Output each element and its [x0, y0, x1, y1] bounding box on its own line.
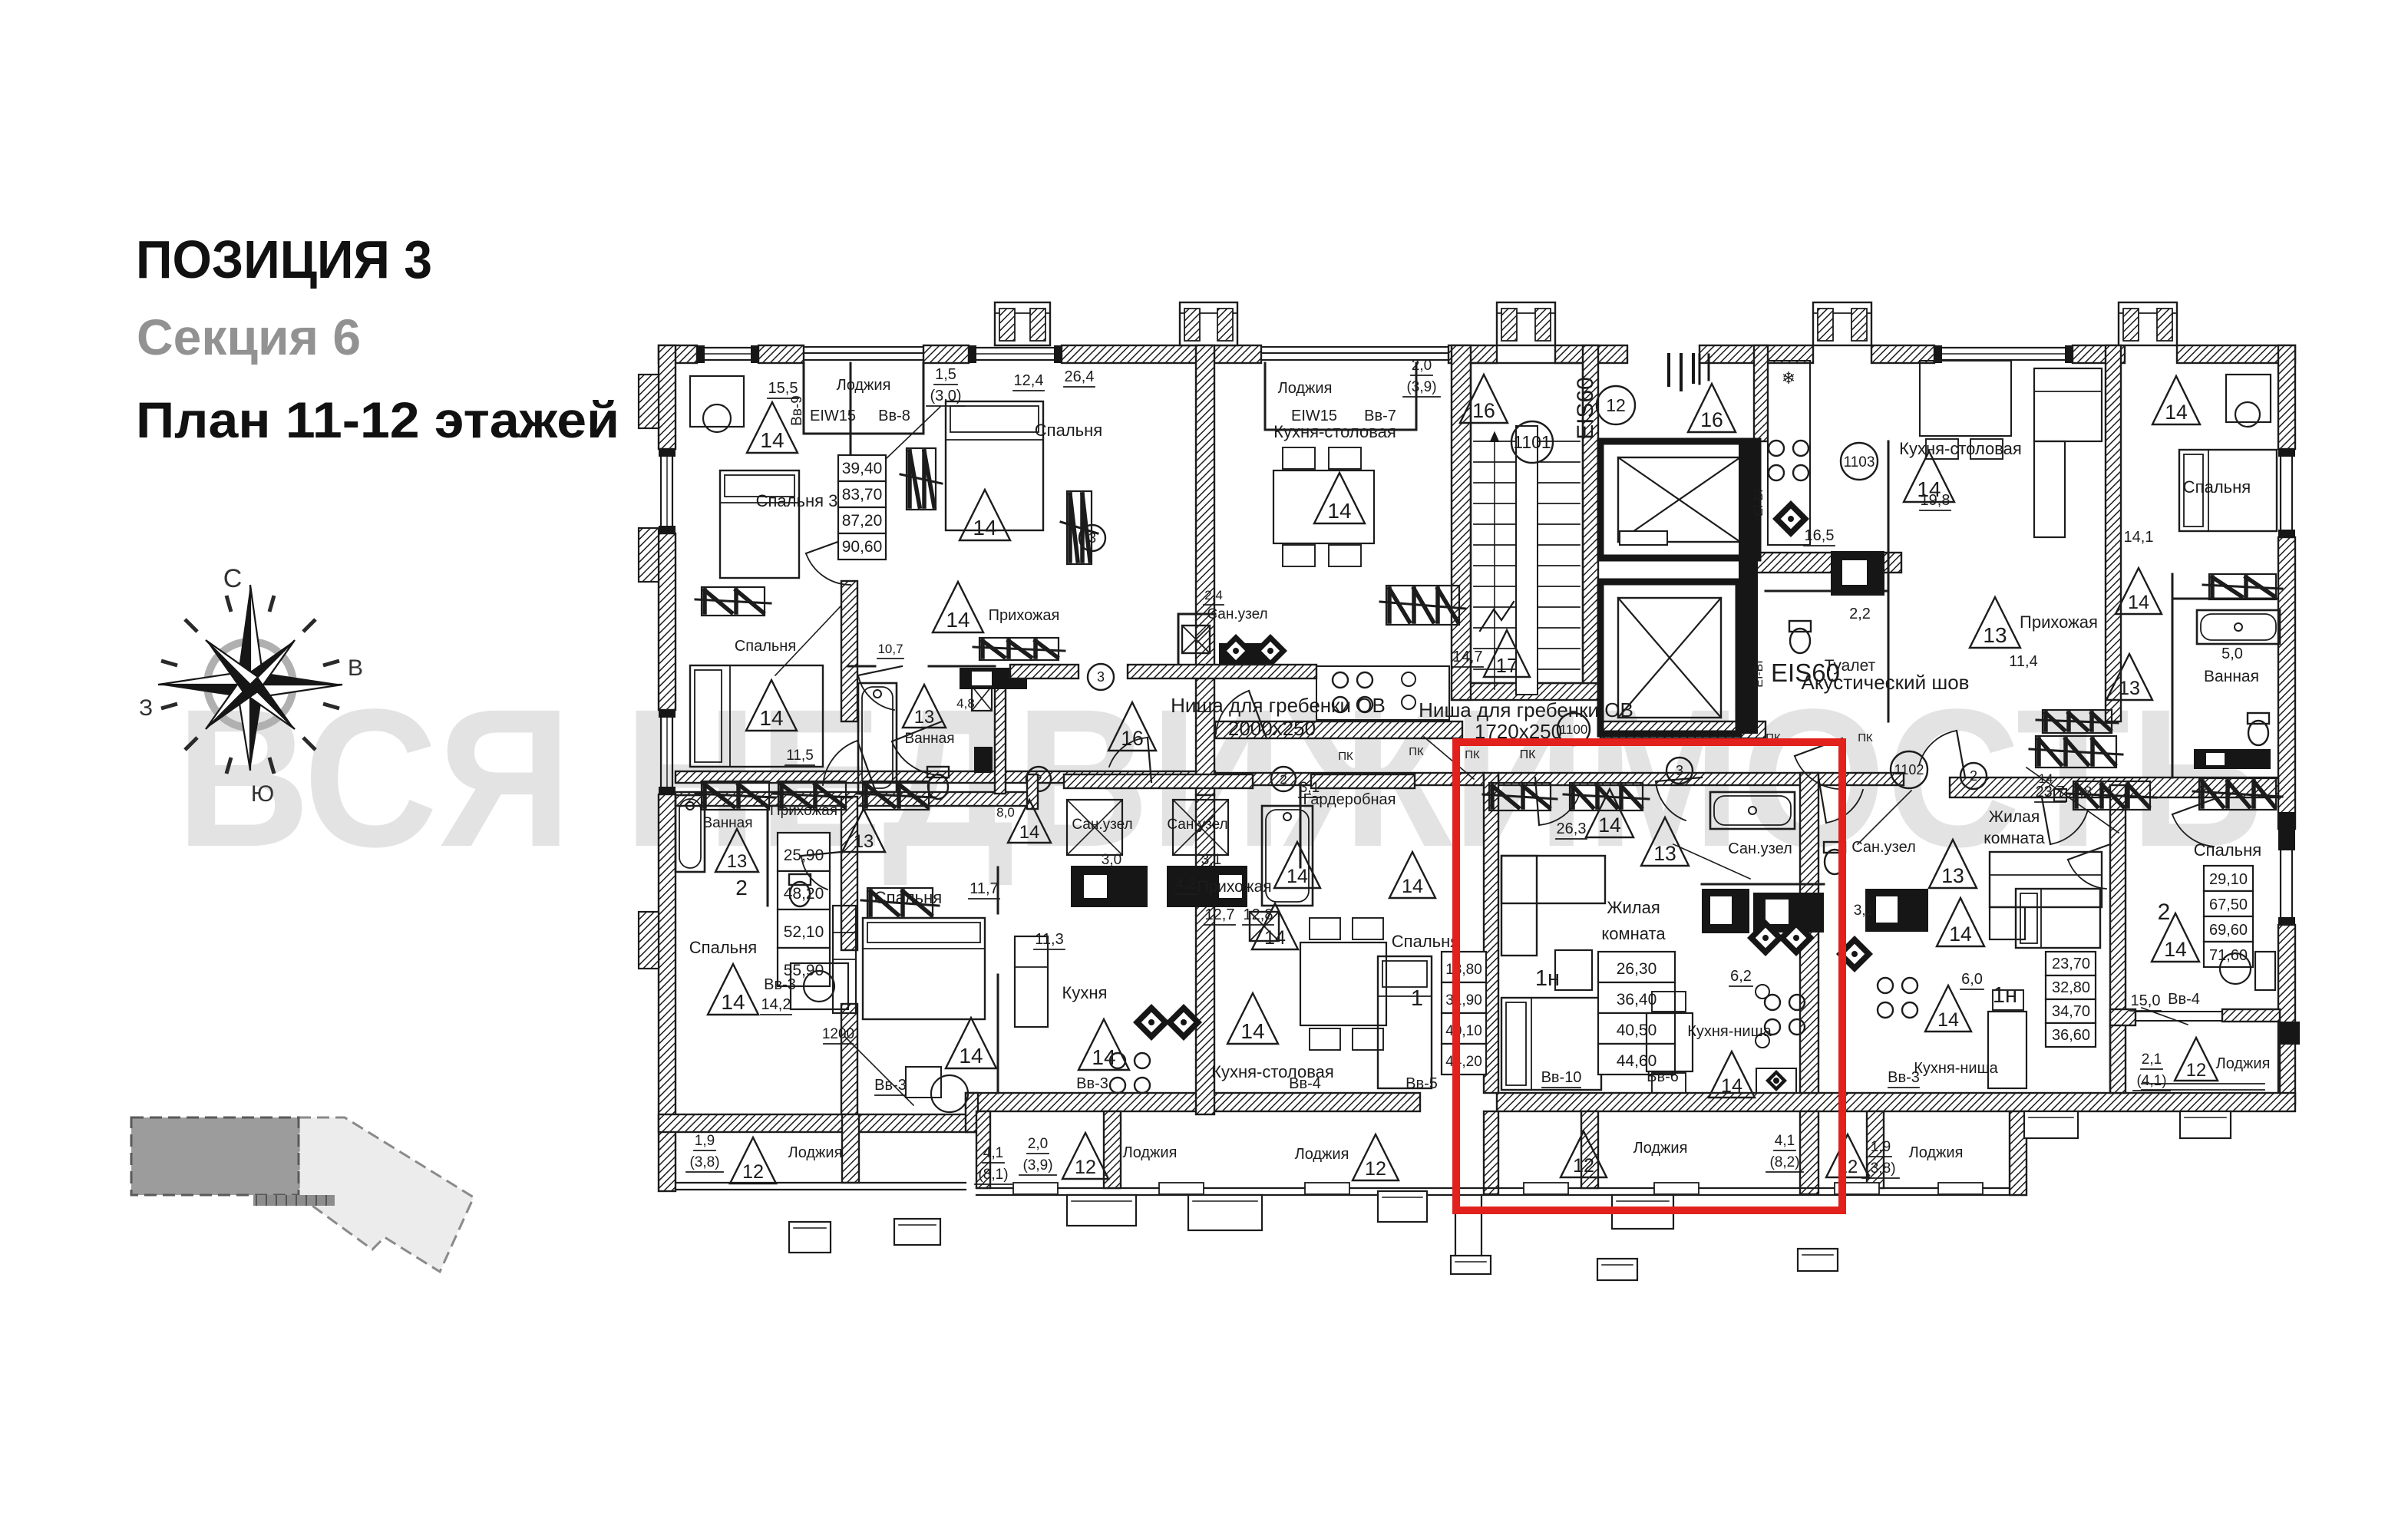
svg-text:40,10: 40,10	[1445, 1023, 1482, 1039]
svg-text:(3,8): (3,8)	[1865, 1160, 1895, 1177]
svg-text:3,1: 3,1	[1854, 903, 1874, 919]
svg-text:36,40: 36,40	[1617, 991, 1657, 1008]
svg-text:Прихожая: Прихожая	[989, 607, 1060, 624]
svg-text:2,2: 2,2	[1849, 606, 1871, 622]
svg-text:Вв-10: Вв-10	[1541, 1069, 1582, 1086]
svg-text:14: 14	[2128, 592, 2149, 613]
svg-text:Кухня: Кухня	[1062, 983, 1108, 1002]
svg-text:3,1: 3,1	[1300, 780, 1320, 796]
svg-text:26,4: 26,4	[1065, 368, 1095, 385]
svg-text:Вв-8: Вв-8	[878, 408, 910, 424]
svg-text:14: 14	[1937, 1009, 1959, 1031]
svg-text:39,40: 39,40	[842, 460, 883, 477]
svg-text:Ниша для гребенки ОВ: Ниша для гребенки ОВ	[1419, 698, 1633, 721]
svg-text:Ванная: Ванная	[2204, 668, 2259, 685]
svg-text:(8,1): (8,1)	[978, 1167, 1008, 1183]
svg-text:Спальня 3: Спальня 3	[756, 491, 838, 510]
svg-text:14,2: 14,2	[761, 996, 791, 1013]
svg-text:32,80: 32,80	[2052, 979, 2090, 996]
svg-text:(4,1): (4,1)	[2136, 1073, 2166, 1089]
svg-text:Лоджия: Лоджия	[1909, 1144, 1964, 1161]
svg-text:(8,2): (8,2)	[1769, 1154, 1799, 1170]
svg-text:Туалет: Туалет	[1825, 657, 1876, 675]
svg-text:14: 14	[973, 516, 996, 540]
svg-text:Прихожая: Прихожая	[770, 803, 837, 819]
svg-text:14: 14	[2039, 771, 2053, 786]
svg-text:1: 1	[1411, 986, 1423, 1011]
svg-text:2,0: 2,0	[1028, 1136, 1048, 1152]
svg-text:2: 2	[1970, 768, 1977, 784]
svg-text:ПК: ПК	[1520, 748, 1537, 761]
svg-text:14: 14	[1402, 876, 1423, 897]
svg-text:ПК: ПК	[1858, 731, 1873, 744]
svg-text:ПК: ПК	[1338, 750, 1353, 763]
svg-text:4,1: 4,1	[983, 1145, 1003, 1161]
svg-text:Спальня: Спальня	[2183, 477, 2251, 497]
svg-text:40,50: 40,50	[1617, 1022, 1657, 1039]
svg-text:3,0: 3,0	[1102, 852, 1121, 868]
svg-text:52,10: 52,10	[784, 923, 824, 941]
svg-text:ПК: ПК	[1465, 748, 1480, 761]
svg-text:69,60: 69,60	[2209, 922, 2248, 939]
svg-text:Ниша для гребенки ОВ: Ниша для гребенки ОВ	[1171, 694, 1386, 717]
svg-text:EIS60: EIS60	[1573, 377, 1598, 440]
svg-text:19,8: 19,8	[1921, 492, 1951, 509]
svg-text:11,3: 11,3	[1035, 931, 1063, 948]
svg-text:Кухня-ниша: Кухня-ниша	[1687, 1023, 1772, 1040]
svg-text:Кухня-ниша: Кухня-ниша	[1914, 1060, 1998, 1077]
svg-text:3: 3	[1097, 669, 1105, 685]
svg-text:14: 14	[721, 990, 745, 1014]
svg-text:В: В	[348, 655, 363, 681]
svg-text:2000х250: 2000х250	[1228, 717, 1316, 740]
svg-text:Спальня: Спальня	[689, 938, 757, 957]
svg-text:14: 14	[760, 428, 784, 452]
svg-text:Сан.узел: Сан.узел	[1167, 817, 1227, 833]
svg-text:комната: комната	[1984, 830, 2045, 847]
svg-text:13: 13	[854, 831, 874, 852]
svg-text:❄: ❄	[1782, 368, 1795, 388]
svg-text:Кухня-столовая: Кухня-столовая	[1273, 422, 1396, 441]
svg-text:83,70: 83,70	[842, 486, 883, 503]
svg-text:2: 2	[735, 876, 748, 900]
svg-text:1101: 1101	[1513, 432, 1551, 452]
svg-text:Вв-3: Вв-3	[874, 1077, 907, 1094]
svg-text:12: 12	[742, 1161, 764, 1183]
svg-text:13: 13	[914, 707, 934, 728]
svg-text:2,1: 2,1	[2142, 1051, 2162, 1068]
svg-text:36,60: 36,60	[2052, 1027, 2090, 1044]
svg-text:Сан.узел: Сан.узел	[1728, 840, 1792, 857]
svg-text:EIW15: EIW15	[810, 408, 856, 424]
svg-text:EIW15: EIW15	[1291, 408, 1337, 424]
svg-text:17: 17	[1496, 655, 1518, 677]
svg-text:15,0: 15,0	[2131, 992, 2161, 1009]
svg-text:1н: 1н	[1993, 983, 2017, 1008]
svg-text:3: 3	[1676, 763, 1683, 778]
svg-text:Прихожая: Прихожая	[1197, 878, 1271, 896]
svg-text:31,90: 31,90	[1445, 992, 1482, 1008]
svg-text:ЕІ-БІ: ЕІ-БІ	[1752, 489, 1766, 516]
svg-text:Сан.узел: Сан.узел	[1072, 817, 1132, 833]
svg-text:4,2: 4,2	[1176, 876, 1196, 893]
svg-text:23,70: 23,70	[2052, 956, 2090, 972]
svg-text:14: 14	[946, 608, 969, 632]
svg-text:14,1: 14,1	[2124, 529, 2154, 546]
svg-text:11,5: 11,5	[786, 748, 814, 764]
svg-text:16: 16	[1472, 399, 1495, 422]
svg-text:Лоджия: Лоджия	[1295, 1146, 1349, 1163]
svg-text:Спальня: Спальня	[1035, 421, 1102, 440]
svg-text:2,4: 2,4	[1204, 588, 1223, 602]
svg-text:6,0: 6,0	[1961, 971, 1983, 988]
svg-text:Спальня: Спальня	[2194, 840, 2261, 860]
svg-text:14,7: 14,7	[1453, 649, 1483, 665]
svg-text:4,8: 4,8	[956, 696, 975, 711]
svg-text:1,9: 1,9	[1871, 1139, 1891, 1155]
svg-text:Вв-5: Вв-5	[1405, 1075, 1438, 1092]
svg-text:Секция 6: Секция 6	[137, 309, 361, 365]
svg-text:14: 14	[2164, 938, 2187, 961]
svg-text:13,80: 13,80	[1445, 962, 1482, 978]
svg-text:44,20: 44,20	[1445, 1054, 1482, 1070]
svg-text:12: 12	[1606, 395, 1626, 415]
svg-text:87,20: 87,20	[842, 512, 883, 530]
svg-text:5,0: 5,0	[2221, 645, 2243, 662]
svg-text:1н: 1н	[1535, 966, 1560, 991]
svg-text:14: 14	[2165, 401, 2188, 424]
svg-text:Вв-7: Вв-7	[1364, 408, 1396, 424]
svg-text:67,50: 67,50	[2209, 896, 2248, 913]
svg-text:З: З	[139, 695, 153, 721]
svg-text:14: 14	[1721, 1075, 1742, 1097]
svg-text:14: 14	[959, 1044, 983, 1068]
svg-text:90,60: 90,60	[842, 538, 883, 556]
svg-text:12,4: 12,4	[1014, 372, 1044, 389]
svg-text:Ю: Ю	[251, 781, 274, 807]
svg-text:Лоджия: Лоджия	[1123, 1144, 1178, 1161]
svg-text:10,7: 10,7	[877, 642, 903, 656]
svg-text:Лоджия: Лоджия	[2216, 1055, 2271, 1072]
svg-text:1103: 1103	[1844, 454, 1875, 470]
svg-text:12: 12	[1075, 1157, 1096, 1178]
svg-text:12: 12	[2186, 1060, 2206, 1081]
svg-text:1100: 1100	[1560, 722, 1588, 737]
svg-text:6,2: 6,2	[1730, 968, 1752, 985]
svg-text:29,10: 29,10	[2209, 871, 2248, 888]
svg-text:Лоджия: Лоджия	[1633, 1140, 1688, 1157]
svg-text:Вв-4: Вв-4	[1289, 1075, 1321, 1092]
svg-text:1,5: 1,5	[935, 366, 956, 383]
svg-text:1200: 1200	[822, 1026, 854, 1042]
svg-text:2,0: 2,0	[1412, 358, 1432, 374]
svg-text:(3,9): (3,9)	[1406, 379, 1436, 395]
svg-text:13: 13	[2119, 678, 2140, 699]
svg-text:Спальня: Спальня	[735, 638, 796, 655]
svg-text:1,9: 1,9	[695, 1133, 715, 1149]
svg-text:ПОЗИЦИЯ 3: ПОЗИЦИЯ 3	[136, 229, 432, 289]
svg-text:Ванная: Ванная	[702, 815, 752, 831]
svg-text:комната: комната	[1601, 924, 1666, 943]
svg-text:Лоджия: Лоджия	[837, 377, 891, 394]
svg-text:14: 14	[1019, 822, 1039, 843]
svg-text:11,4: 11,4	[2009, 653, 2037, 670]
svg-text:14: 14	[1598, 814, 1621, 837]
svg-text:(3,9): (3,9)	[1022, 1157, 1052, 1174]
svg-text:Вв-3: Вв-3	[1076, 1075, 1108, 1092]
svg-text:Жилая: Жилая	[1989, 808, 2040, 826]
svg-text:11,7: 11,7	[969, 880, 998, 897]
svg-text:16,5: 16,5	[1805, 527, 1835, 544]
svg-text:34,70: 34,70	[2052, 1003, 2090, 1020]
svg-text:Сан.узел: Сан.узел	[1207, 606, 1267, 622]
svg-text:Вв-6: Вв-6	[1647, 1068, 1679, 1085]
svg-text:ЕІ-БІ: ЕІ-БІ	[1752, 660, 1766, 687]
svg-text:44,60: 44,60	[1617, 1052, 1657, 1070]
svg-text:14: 14	[1327, 499, 1351, 523]
svg-text:13: 13	[1941, 864, 1964, 887]
svg-text:26,30: 26,30	[1617, 960, 1657, 978]
svg-text:13: 13	[727, 851, 747, 872]
svg-text:Лоджия: Лоджия	[1278, 380, 1333, 397]
svg-text:Жилая: Жилая	[1607, 898, 1660, 917]
svg-text:0,8: 0,8	[2072, 784, 2092, 801]
svg-text:С: С	[223, 564, 243, 593]
svg-text:(3,8): (3,8)	[689, 1154, 719, 1170]
svg-text:Лоджия: Лоджия	[788, 1144, 843, 1161]
svg-text:Вв-3: Вв-3	[1888, 1069, 1920, 1086]
svg-text:14: 14	[759, 706, 783, 730]
svg-text:8,0: 8,0	[996, 805, 1015, 820]
svg-text:14: 14	[1949, 923, 1972, 946]
svg-text:14: 14	[1240, 1019, 1264, 1043]
svg-text:14: 14	[1287, 866, 1308, 887]
svg-text:2: 2	[1280, 772, 1287, 787]
svg-text:4,1: 4,1	[1775, 1133, 1795, 1149]
svg-text:15,5: 15,5	[768, 380, 798, 397]
svg-text:12,7: 12,7	[1205, 906, 1235, 923]
svg-text:13: 13	[1653, 842, 1676, 865]
svg-text:2: 2	[2158, 900, 2171, 925]
svg-text:Прихожая: Прихожая	[2020, 612, 2098, 632]
svg-text:ПК: ПК	[1409, 745, 1424, 758]
svg-text:Вв-4: Вв-4	[2168, 991, 2200, 1008]
svg-text:Спальня: Спальня	[1392, 932, 1459, 951]
svg-text:12: 12	[1573, 1155, 1594, 1177]
svg-text:План 11-12 этажей: План 11-12 этажей	[136, 391, 619, 448]
svg-text:26,3: 26,3	[1557, 820, 1587, 837]
svg-text:16: 16	[1700, 408, 1723, 431]
svg-text:3,1: 3,1	[1201, 852, 1221, 868]
svg-text:13: 13	[1983, 623, 2007, 647]
svg-text:12: 12	[1365, 1158, 1386, 1180]
